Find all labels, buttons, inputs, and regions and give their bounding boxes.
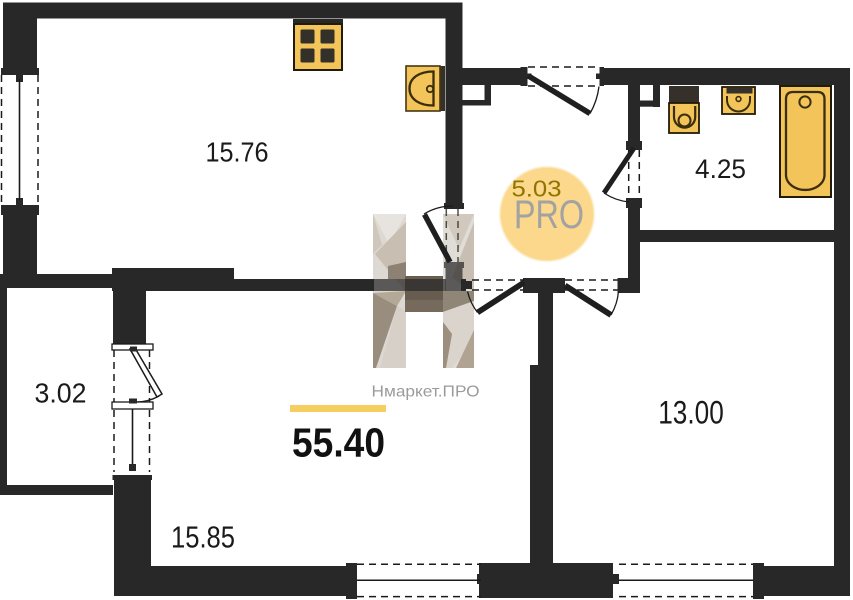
svg-text:Нмаркет.ПРО: Нмаркет.ПРО (372, 384, 480, 401)
svg-text:13.00: 13.00 (658, 395, 724, 431)
svg-text:55.40: 55.40 (292, 420, 385, 466)
svg-text:15.85: 15.85 (171, 521, 235, 555)
svg-text:PRO: PRO (514, 193, 584, 237)
svg-text:3.02: 3.02 (35, 378, 87, 409)
svg-text:15.76: 15.76 (206, 137, 269, 168)
svg-text:4.25: 4.25 (695, 154, 746, 184)
